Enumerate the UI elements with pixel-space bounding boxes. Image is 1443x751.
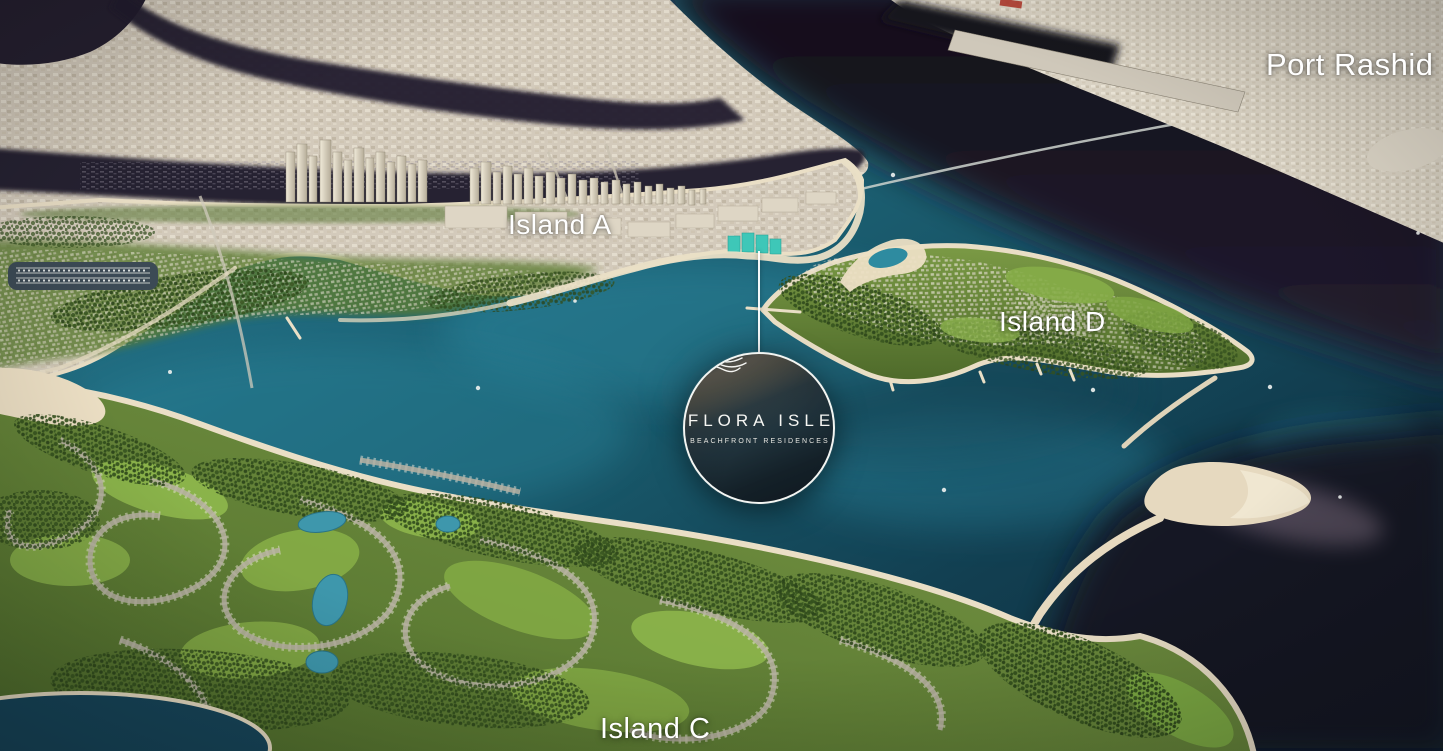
badge-title: FLORA ISLE	[683, 411, 835, 431]
label-island-a: Island A	[508, 211, 612, 239]
leader-line	[758, 251, 760, 353]
label-island-c: Island C	[600, 715, 710, 744]
label-port-rashid: Port Rashid	[1266, 49, 1433, 80]
waves-logo-icon	[685, 354, 749, 374]
flora-isle-badge: FLORA ISLE BEACHFRONT RESIDENCES	[683, 352, 835, 504]
badge-subtitle: BEACHFRONT RESIDENCES	[688, 438, 830, 445]
flora-isle-badge-content: FLORA ISLE BEACHFRONT RESIDENCES	[685, 354, 833, 502]
masterplan-map-image: FLORA ISLE BEACHFRONT RESIDENCES Port Ra…	[0, 0, 1443, 751]
label-island-d: Island D	[999, 308, 1106, 336]
